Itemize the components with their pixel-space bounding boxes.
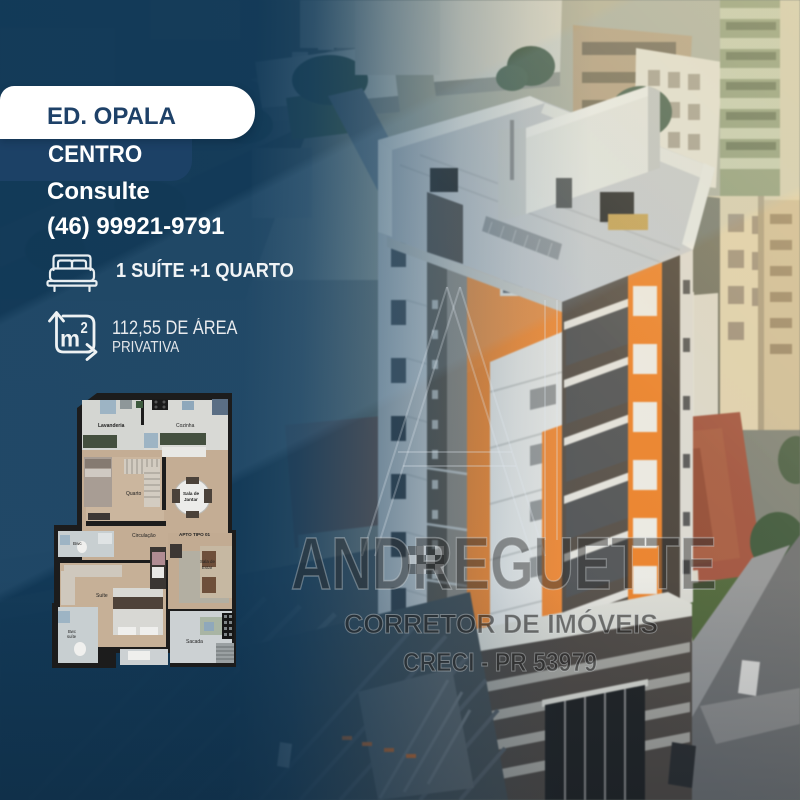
svg-text:Quarto: Quarto xyxy=(126,491,142,497)
svg-text:CORRETOR DE IMÓVEIS: CORRETOR DE IMÓVEIS xyxy=(344,608,658,639)
svg-text:Sala de: Sala de xyxy=(200,559,215,564)
svg-text:CRECI - PR 53979: CRECI - PR 53979 xyxy=(403,647,597,677)
svg-text:m: m xyxy=(60,326,80,352)
svg-text:APTO TIPO 01: APTO TIPO 01 xyxy=(179,532,211,537)
svg-text:Bwc: Bwc xyxy=(73,541,82,546)
svg-text:Jantar: Jantar xyxy=(184,497,198,502)
svg-text:suíte: suíte xyxy=(67,634,77,639)
svg-text:ANDREGUETTE: ANDREGUETTE xyxy=(291,522,717,605)
svg-text:Lavanderia: Lavanderia xyxy=(98,423,125,429)
svg-text:Sacada: Sacada xyxy=(186,639,203,645)
svg-text:Cozinha: Cozinha xyxy=(176,423,195,429)
svg-text:Suíte: Suíte xyxy=(96,593,108,599)
svg-text:Estar: Estar xyxy=(202,565,213,570)
svg-text:2: 2 xyxy=(81,320,88,337)
svg-text:Circulação: Circulação xyxy=(132,533,156,539)
svg-text:Sala de: Sala de xyxy=(183,491,200,496)
